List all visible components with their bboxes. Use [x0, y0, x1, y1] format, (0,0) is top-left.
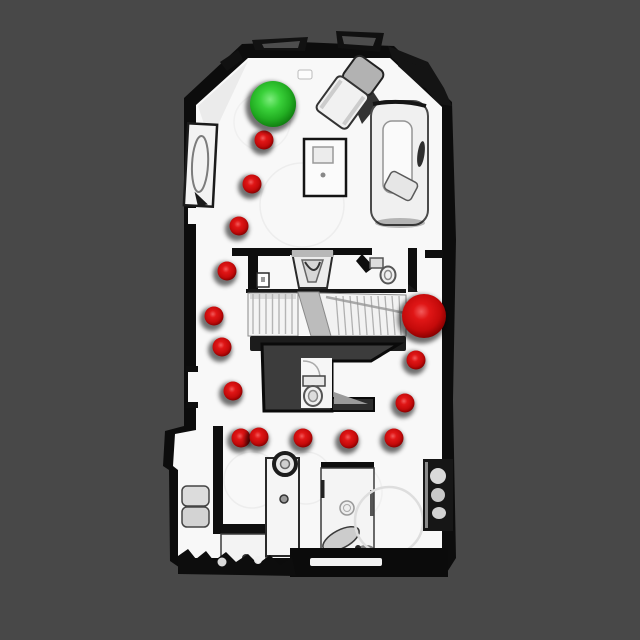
waypoint-marker-2[interactable] — [230, 217, 249, 236]
interior-wall-bottom-left — [213, 426, 223, 534]
stair-top-edge — [246, 289, 406, 293]
faucet — [280, 495, 288, 503]
waypoint-marker-5[interactable] — [213, 338, 232, 357]
waypoint-marker-3[interactable] — [218, 262, 237, 281]
toilet-bowl-inner — [309, 391, 318, 402]
shelf-unit — [423, 459, 453, 531]
waypoint-marker-6[interactable] — [224, 382, 243, 401]
red-sphere-large-marker[interactable] — [402, 294, 446, 338]
door-opening-left — [188, 372, 197, 402]
scan-noise-white — [254, 556, 262, 564]
coffee-table-detail — [321, 173, 326, 178]
shelf-item — [431, 488, 445, 502]
sofa-shadow — [375, 218, 425, 228]
cushion — [182, 486, 209, 506]
toilet-bowl — [381, 267, 396, 284]
waypoint-marker-12[interactable] — [407, 351, 426, 370]
waypoint-marker-0[interactable] — [255, 131, 274, 150]
door-symbol-glyph — [261, 277, 265, 282]
shelf-item — [432, 507, 446, 519]
table-side-mark — [321, 480, 325, 498]
waypoint-marker-11[interactable] — [385, 429, 404, 448]
shelf-item — [430, 468, 446, 484]
floor-object-small — [298, 70, 312, 79]
stool-center — [281, 460, 290, 469]
cushion — [182, 507, 209, 527]
dining-table — [319, 462, 374, 556]
coffee-table-tray — [313, 147, 333, 163]
alcove-cushions — [182, 486, 209, 527]
staircase — [246, 289, 406, 351]
threshold-strip — [310, 558, 382, 566]
interior-wall-stub — [425, 250, 443, 258]
toilet-tank — [303, 376, 325, 386]
console-table — [184, 123, 217, 206]
shelf-edge — [425, 462, 428, 528]
stair-treads-left — [253, 294, 292, 334]
scan-noise-white — [218, 558, 227, 567]
plate — [340, 501, 354, 515]
coffee-table — [304, 139, 346, 196]
toilet-tank — [370, 258, 383, 268]
lower-bathroom — [301, 358, 332, 408]
waypoint-marker-13[interactable] — [396, 394, 415, 413]
waypoint-marker-8[interactable] — [250, 428, 269, 447]
waypoint-marker-4[interactable] — [205, 307, 224, 326]
door-opening-left-upper — [188, 208, 197, 224]
kitchen-island — [266, 453, 299, 556]
waypoint-marker-1[interactable] — [243, 175, 262, 194]
scan-viewer-canvas[interactable] — [0, 0, 640, 640]
floorplan-top-view — [0, 0, 640, 640]
waypoint-marker-9[interactable] — [294, 429, 313, 448]
vanity-counter — [292, 250, 333, 257]
door-jamb — [186, 402, 198, 408]
green-sphere-marker[interactable] — [250, 81, 296, 127]
door-jamb — [186, 366, 198, 372]
waypoint-marker-10[interactable] — [340, 430, 359, 449]
vanity-sink — [292, 250, 333, 288]
